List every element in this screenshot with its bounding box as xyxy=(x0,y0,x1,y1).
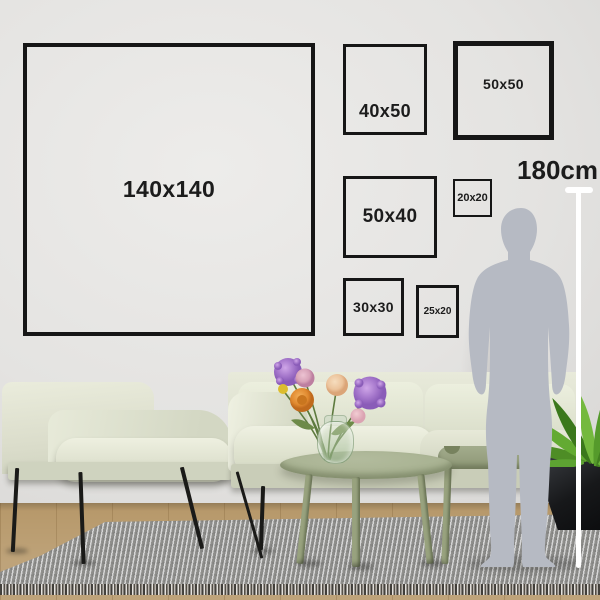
person-silhouette xyxy=(455,203,585,568)
measure-line xyxy=(576,189,581,568)
frame-label: 50x40 xyxy=(363,206,418,228)
leg-shadow xyxy=(296,560,322,567)
leg-shadow xyxy=(6,548,28,554)
armchair-base xyxy=(8,462,232,480)
frame-label: 40x50 xyxy=(359,101,411,122)
leg-shadow xyxy=(348,563,374,570)
flower-heads xyxy=(274,358,387,424)
frame-label: 140x140 xyxy=(123,176,215,203)
frame-label: 25x20 xyxy=(424,306,452,317)
frame-25x20: 25x20 xyxy=(416,285,459,338)
glass-vase xyxy=(317,421,354,464)
leg-shadow xyxy=(252,548,274,554)
coffee-table-leg xyxy=(352,477,360,567)
frame-140x140: 140x140 xyxy=(23,43,315,336)
frame-label: 30x30 xyxy=(353,299,394,315)
frame-40x50: 40x50 xyxy=(343,44,427,135)
frame-50x40: 50x40 xyxy=(343,176,437,258)
frame-size-infographic: 140x140 40x50 50x50 50x40 20x20 30x30 25… xyxy=(0,0,600,600)
frame-label: 50x50 xyxy=(483,76,524,92)
person-silhouette-shape xyxy=(469,208,570,567)
frame-50x50: 50x50 xyxy=(453,41,554,140)
frame-30x30: 30x30 xyxy=(343,278,404,336)
leg-shadow xyxy=(420,560,446,567)
rug-fringe xyxy=(0,584,600,595)
leg-shadow xyxy=(72,560,96,566)
height-scale-label: 180cm xyxy=(508,155,598,186)
